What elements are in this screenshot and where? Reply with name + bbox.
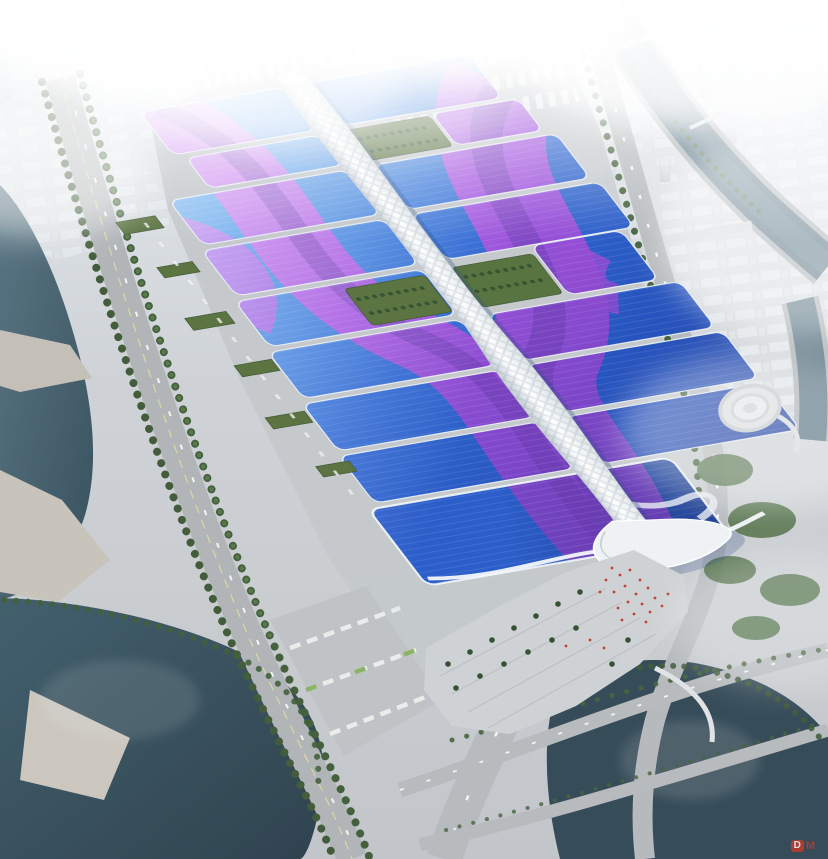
watermark-text: M [806, 840, 816, 852]
rendering-canvas [0, 0, 828, 859]
watermark-logo: D [791, 840, 804, 852]
aerial-rendering: D M [0, 0, 828, 859]
watermark: D M [791, 840, 816, 852]
fog-haze [0, 0, 828, 859]
